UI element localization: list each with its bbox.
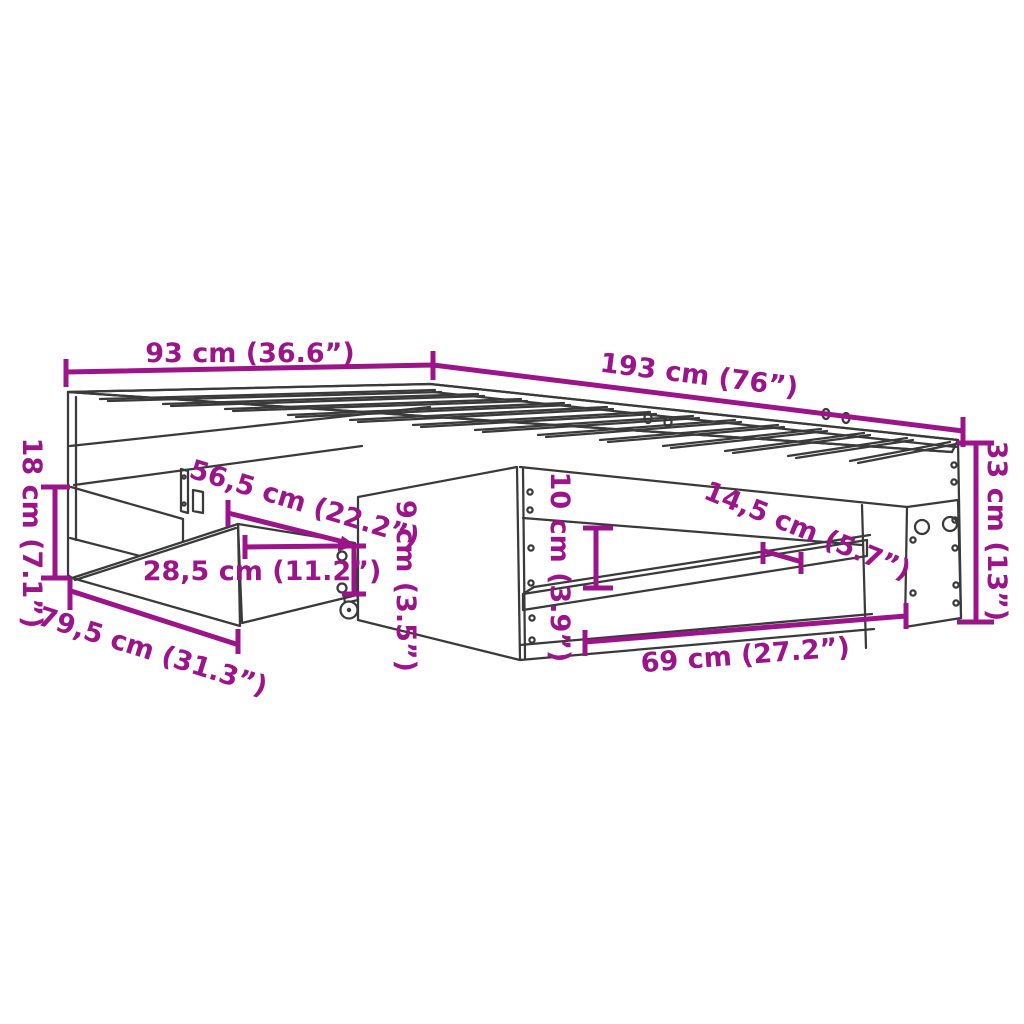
dim-label-bed-length: 193 cm (76”) (598, 348, 800, 404)
dim-label-base-height: 18 cm (7.1”) (16, 438, 47, 629)
diagram-canvas: 93 cm (36.6”) 193 cm (76”) 18 cm (7.1”) … (0, 0, 1024, 1024)
dim-label-bed-width: 93 cm (36.6”) (145, 338, 355, 369)
dimension-base-height: 18 cm (7.1”) (16, 438, 70, 629)
dim-label-shelf-opening-height: 10 cm (3.9”) (544, 472, 575, 663)
bed-frame-dimension-diagram: 93 cm (36.6”) 193 cm (76”) 18 cm (7.1”) … (0, 0, 1024, 1024)
foot-panel (905, 440, 961, 627)
dimension-frame-height: 33 cm (13”) (957, 441, 1012, 622)
dim-label-shelf-opening-width: 69 cm (27.2”) (640, 632, 851, 679)
dimension-bed-width: 93 cm (36.6”) (66, 338, 433, 387)
dim-label-drawer-height: 9 cm (3.5”) (390, 500, 421, 672)
dimension-shelf-opening-height: 10 cm (3.9”) (544, 472, 613, 663)
dimension-shelf-depth: 14,5 cm (5.7”) (699, 476, 914, 587)
dim-label-drawer-side: 28,5 cm (11.2”) (143, 556, 382, 587)
middle-divider-panel (358, 467, 520, 660)
dim-label-shelf-depth: 14,5 cm (5.7”) (699, 476, 914, 587)
divider-screw-holes (527, 489, 534, 642)
dim-label-frame-height: 33 cm (13”) (981, 441, 1012, 622)
